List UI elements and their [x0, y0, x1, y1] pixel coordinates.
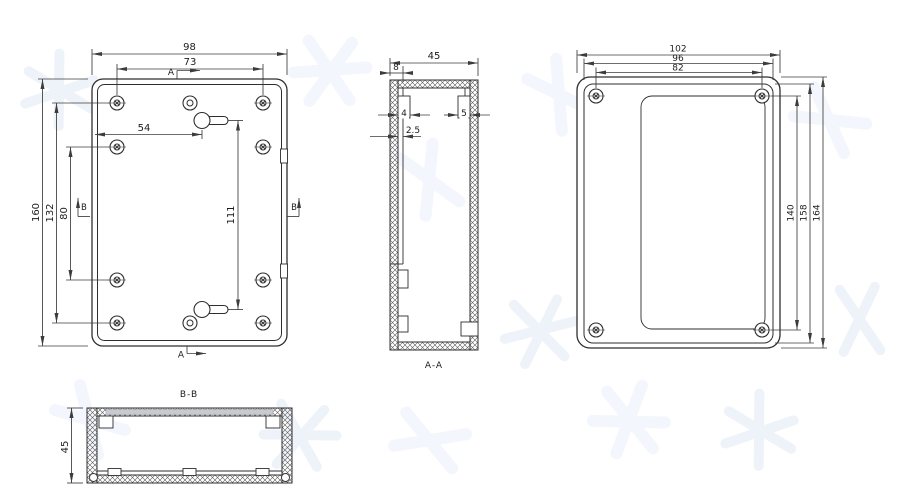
section-letter-b-right: B: [291, 203, 297, 213]
technical-drawing-canvas: 98 73 A 54 111 160: [0, 0, 900, 500]
section-marker-b-left: B: [78, 198, 90, 217]
dim-aa-left-step: 4: [378, 108, 430, 120]
dim-aa-right-step: 5: [444, 108, 490, 120]
bb-boss: [99, 416, 113, 428]
dim-label-front-mid-hole-span: 80: [59, 207, 70, 220]
dim-aa-wall: 8: [381, 63, 412, 82]
dim-label-front-outer-height: 160: [31, 203, 42, 222]
dim-label-aa-left-step: 4: [401, 109, 407, 119]
dim-label-front-hole-span-height: 132: [45, 203, 56, 222]
pilot-hole: [183, 316, 197, 330]
back-view: 102 96 82 140 158: [577, 45, 827, 349]
dim-label-aa-rib: 2.5: [406, 126, 420, 136]
enclosure-drawing: 98 73 A 54 111 160: [0, 0, 900, 500]
bb-boss: [266, 416, 280, 428]
aa-bottom-wall: [398, 342, 470, 350]
pilot-hole: [183, 96, 197, 110]
dim-label-front-keyhole-offset: 54: [138, 123, 151, 134]
bb-tab: [183, 469, 196, 476]
bb-bottom-wall: [97, 475, 282, 483]
bb-lid-seam: [106, 410, 273, 415]
back-rim-outline: [584, 84, 773, 343]
dim-label-back-rim-height: 158: [800, 204, 810, 221]
front-right-notch-upper: [281, 149, 288, 163]
aa-top-wall: [398, 80, 470, 88]
section-aa-caption: A-A: [425, 361, 443, 371]
dim-label-back-rim-width: 96: [672, 54, 684, 64]
dim-label-back-hole-span-height: 140: [787, 204, 797, 221]
dim-label-aa-width: 45: [428, 51, 441, 62]
section-letter-b-left: B: [81, 203, 87, 213]
bb-tab: [256, 469, 269, 476]
bb-tab: [108, 469, 121, 476]
dim-label-front-outer-width: 98: [183, 42, 196, 53]
bb-left-wall: [87, 408, 97, 483]
bb-corner-boss: [90, 474, 98, 482]
section-bb-caption: B-B: [180, 390, 198, 400]
dim-label-aa-right-step: 5: [461, 109, 467, 119]
dim-label-back-hole-span-width: 82: [672, 64, 683, 74]
aa-left-wall: [390, 80, 398, 350]
bb-right-wall: [282, 408, 292, 483]
dim-label-bb-height: 45: [60, 441, 71, 454]
section-marker-a-top: A: [168, 68, 200, 79]
aa-boss: [398, 270, 408, 288]
bb-corner-boss: [282, 474, 290, 482]
dim-label-back-outer-height: 164: [813, 204, 823, 221]
dim-label-aa-wall: 8: [393, 63, 399, 73]
section-marker-a-bottom: A: [178, 346, 206, 361]
dim-label-front-keyhole-span: 111: [226, 205, 237, 224]
section-marker-b-right: B: [287, 198, 299, 217]
section-letter-a-bottom: A: [178, 351, 185, 361]
aa-boss: [461, 322, 478, 336]
front-right-notch-lower: [281, 264, 288, 278]
dim-label-front-hole-span-width: 73: [184, 57, 197, 68]
section-bb-view: B-B 45: [60, 390, 292, 483]
aa-right-wall: [470, 80, 478, 350]
front-rim-outline: [98, 85, 282, 341]
section-letter-a-top: A: [168, 68, 175, 78]
aa-boss: [398, 316, 408, 332]
dim-label-back-outer-width: 102: [669, 45, 686, 55]
